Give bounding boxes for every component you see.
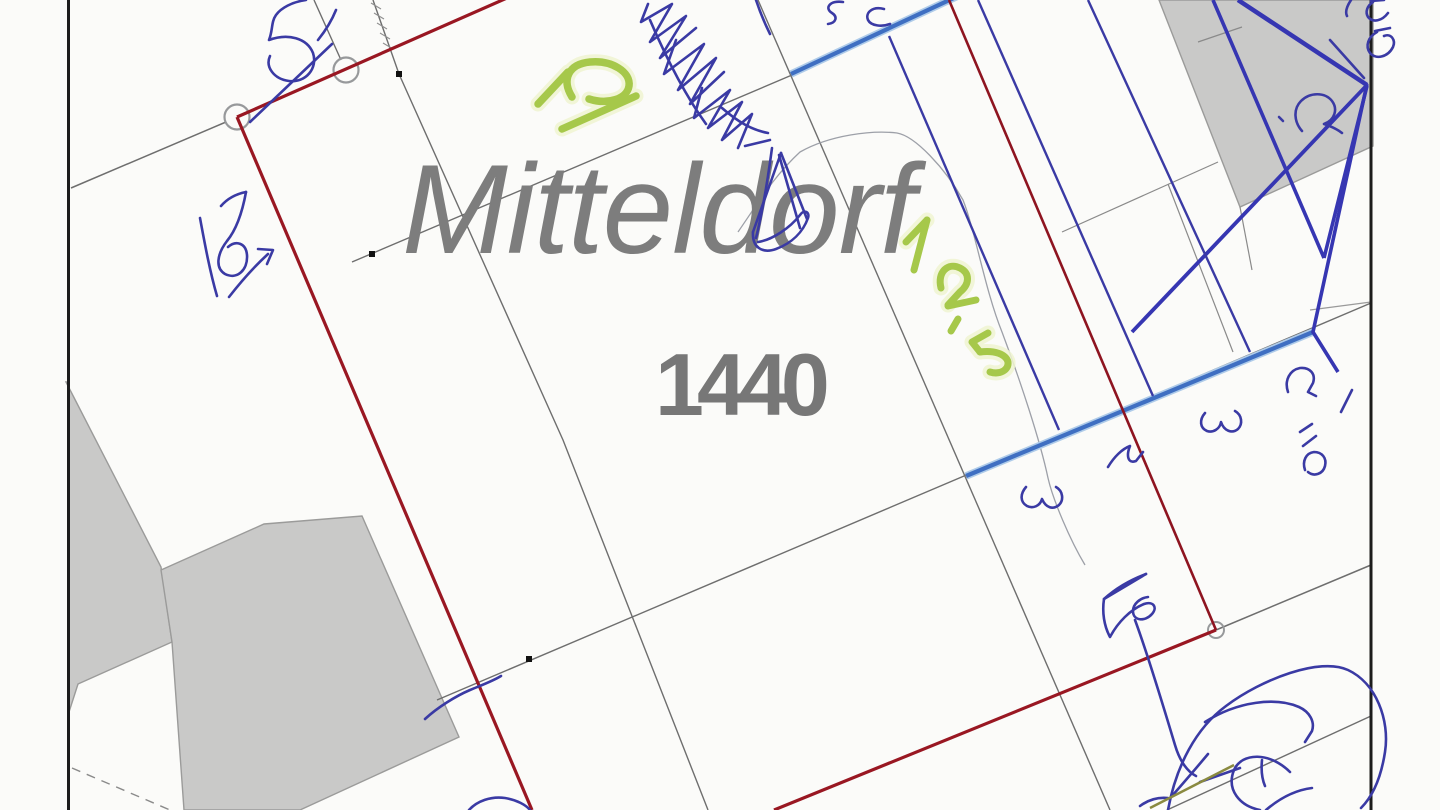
svg-text:Mitteldorf: Mitteldorf (402, 138, 927, 280)
svg-text:1440: 1440 (655, 335, 827, 434)
